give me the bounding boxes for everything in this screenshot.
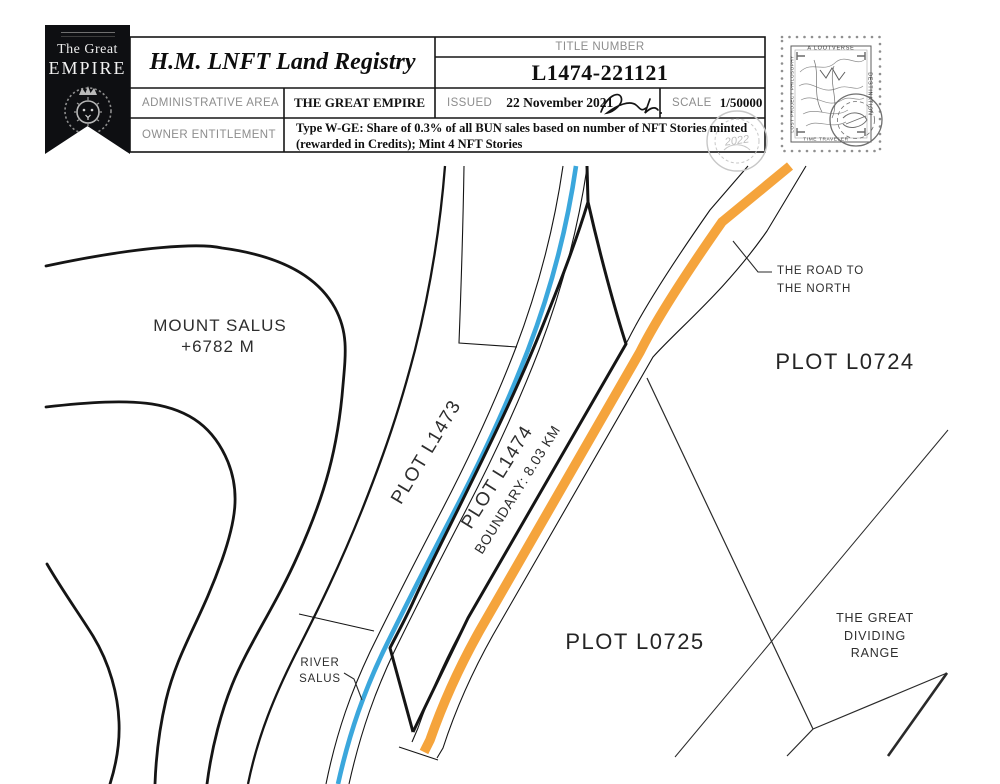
plot-l1473-boundaries [248,166,517,784]
owner-entitlement-label: OWNER ENTITLEMENT [142,118,284,152]
road-label-line1: THE ROAD TO [777,265,864,277]
land-registry-document: MOUNT SALUS +6782 M PLOT L1473 PLOT L147… [0,0,1000,784]
range-label-line3: RANGE [851,646,899,660]
plot-l0724-label: PLOT L0724 [775,349,914,374]
contour-inner [47,564,119,784]
stamp-postmark [830,94,882,146]
stamp-top-text: A LOOTVERSE [807,46,854,52]
road-end-cut [399,747,438,760]
l1473-north-cross-line [459,166,517,347]
river-label-line2: SALUS [299,673,341,685]
issued-date: 22 November 2021 [506,95,613,111]
mount-salus-label: MOUNT SALUS [153,316,287,335]
title-number-label: TITLE NUMBER [435,37,765,57]
l0724-l0725-boundary [647,378,813,756]
eastern-boundaries [647,378,948,757]
range-label-line2: DIVIDING [844,629,906,643]
banner-title-line1: The Great [45,42,130,58]
stamp-left-text: LOST PROJECT PHILOSOPHY [790,55,795,132]
river-corridor [326,166,587,784]
banner-title-line2: EMPIRE [45,58,130,79]
stamp-right-text: DESTINATION [867,72,873,115]
plot-l0725-label: PLOT L0725 [565,629,704,654]
registry-title: H.M. LNFT Land Registry [130,37,435,88]
owner-entitlement-text: Type W-GE: Share of 0.3% of all BUN sale… [296,121,758,151]
l1474-north-stub [587,166,588,202]
scale-row: SCALE 1/50000 [672,88,762,118]
postage-stamp: A LOOTVERSE DESTINATION LOST PROJECT PHI… [782,37,882,151]
administrative-area-value: THE GREAT EMPIRE [284,88,435,118]
plot-l1473-label: PLOT L1473 [387,397,465,508]
range-label-line1: THE GREAT [836,611,914,625]
contour-middle [46,402,235,784]
range-boundary-line [675,430,948,757]
road-right-edge [437,166,806,758]
issued-row: ISSUED 22 November 2021 [447,88,655,118]
owner-entitlement-line1: Type W-GE: Share of 0.3% of all BUN sale… [296,121,758,137]
issued-label: ISSUED [447,97,492,109]
mount-salus-elevation: +6782 M [181,337,255,356]
administrative-area-label: ADMINISTRATIVE AREA [142,88,284,118]
scale-label: SCALE [672,97,712,109]
scale-value: 1/50000 [720,95,763,111]
title-number-value: L1474-221121 [435,57,765,88]
owner-entitlement-line2: (rewarded in Credits); Mint 4 NFT Storie… [296,137,758,153]
banner-ornament [61,32,115,37]
road-label-line2: THE NORTH [777,283,851,295]
river-salus-line [338,166,576,784]
river-label-line1: RIVER [300,657,339,669]
